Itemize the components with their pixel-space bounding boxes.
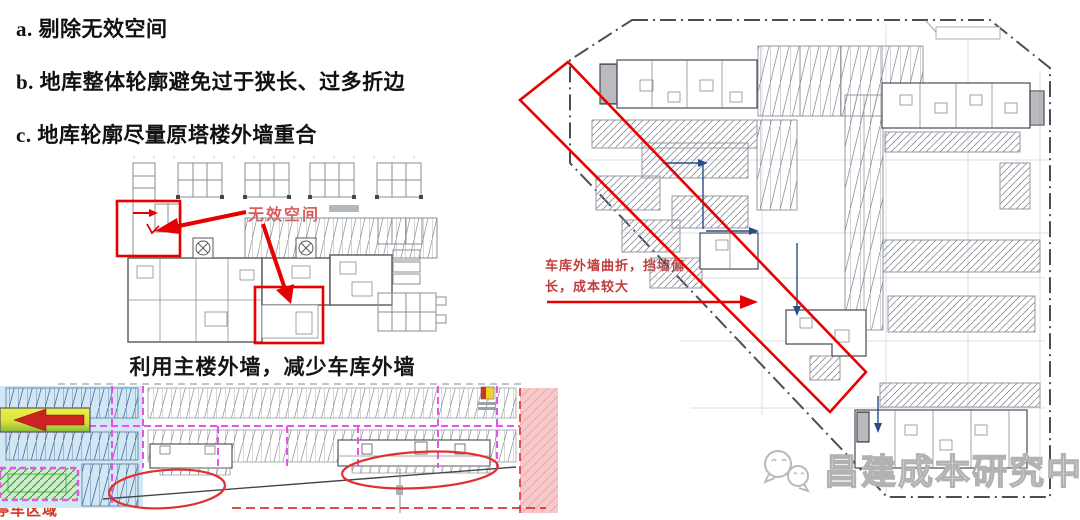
watermark-text: 昌建成本研究中心: [824, 444, 1080, 495]
right-floor-plan-drawing: [505, 5, 1080, 513]
entrance-arrow: [0, 408, 90, 432]
design-rule-c: c. 地库轮廓尽量原塔楼外墙重合: [16, 119, 317, 149]
podium-building-b: [338, 440, 490, 473]
watermark: 昌建成本研究中心: [756, 444, 1080, 495]
design-rule-b: b. 地库整体轮廓避免过于狭长、过多折边: [16, 66, 405, 96]
main-building-outline: [128, 255, 392, 342]
mid-floor-plan-drawing: [100, 150, 448, 352]
bottom-floor-plan-drawing: [0, 380, 558, 513]
tiny-plan-label-blob: [329, 205, 359, 212]
boundary-label-box: [925, 20, 1000, 39]
design-rule-a: a. 剔除无效空间: [16, 13, 168, 43]
red-arrow-to-box1: [155, 212, 246, 234]
green-zone: [0, 468, 78, 500]
chat-bubbles-icon: [756, 445, 814, 495]
survey-label-blob: [396, 485, 403, 495]
mid-plan-caption: 利用主楼外墙，减少车库外墙: [100, 351, 445, 381]
slide-canvas: { "bullets": { "a": "a. 剔除无效空间", "b": "b…: [0, 0, 1080, 513]
